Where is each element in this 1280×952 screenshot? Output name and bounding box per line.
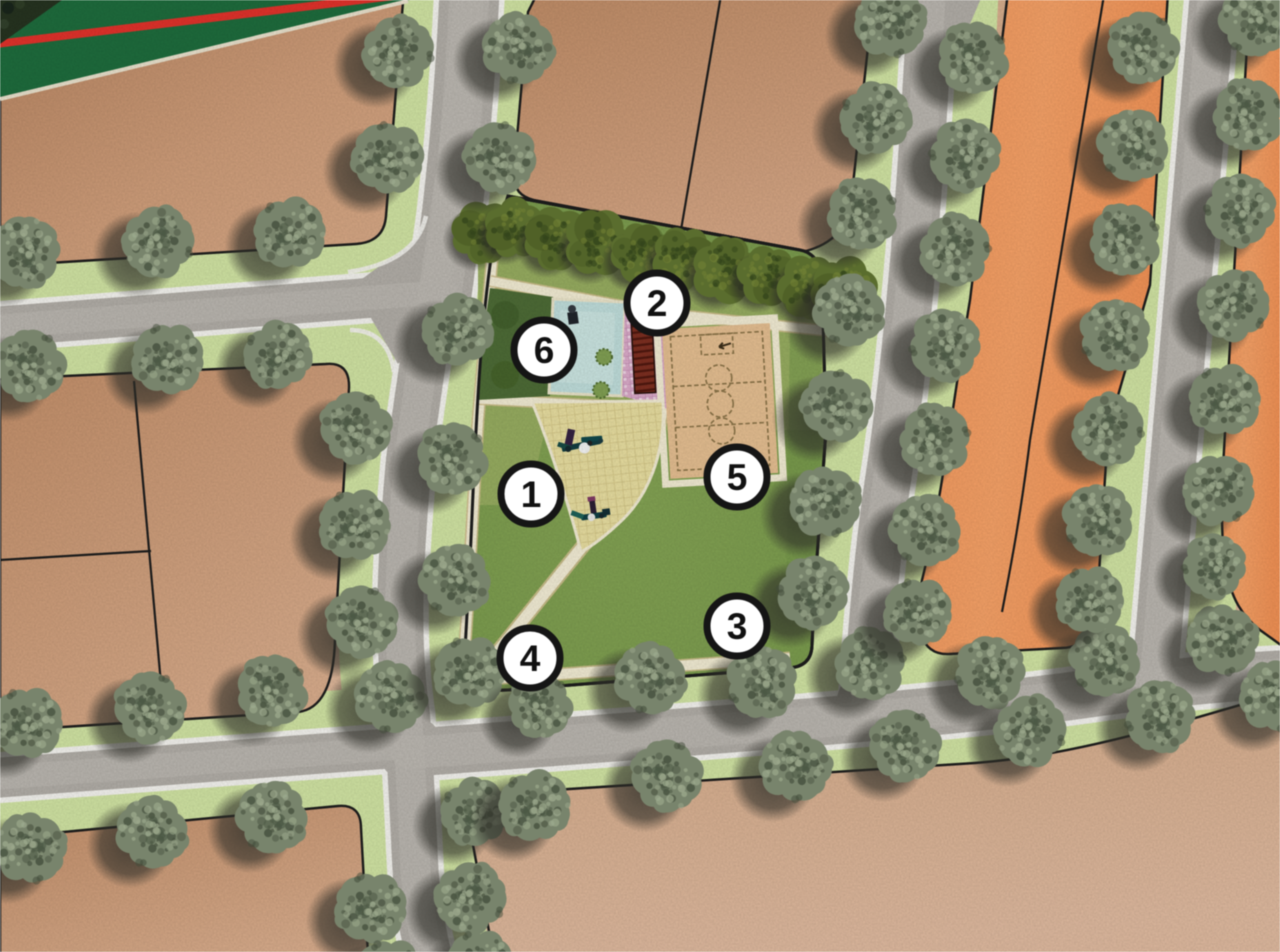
svg-text:5: 5 — [727, 457, 748, 498]
svg-text:4: 4 — [520, 638, 541, 679]
svg-text:1: 1 — [521, 474, 542, 515]
svg-text:2: 2 — [647, 283, 668, 324]
svg-text:3: 3 — [727, 606, 748, 647]
svg-text:6: 6 — [534, 330, 555, 371]
